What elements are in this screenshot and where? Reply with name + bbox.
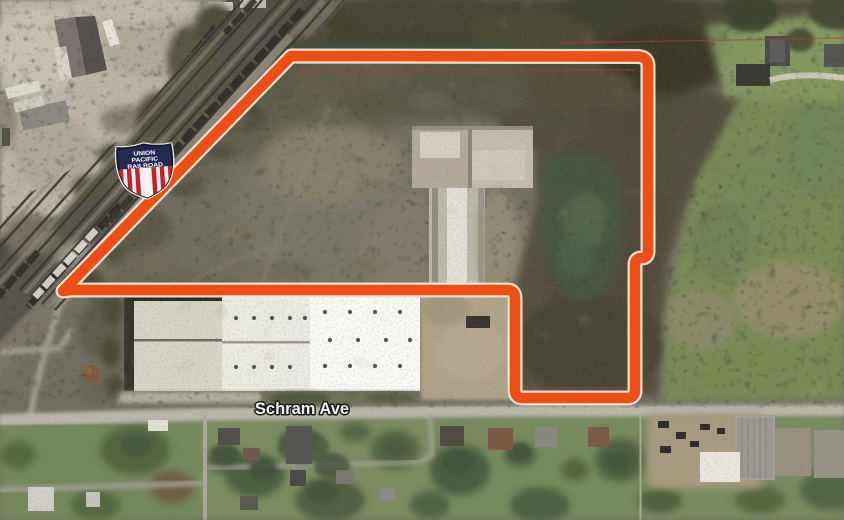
svg-text:Schram Ave: Schram Ave — [255, 400, 349, 418]
